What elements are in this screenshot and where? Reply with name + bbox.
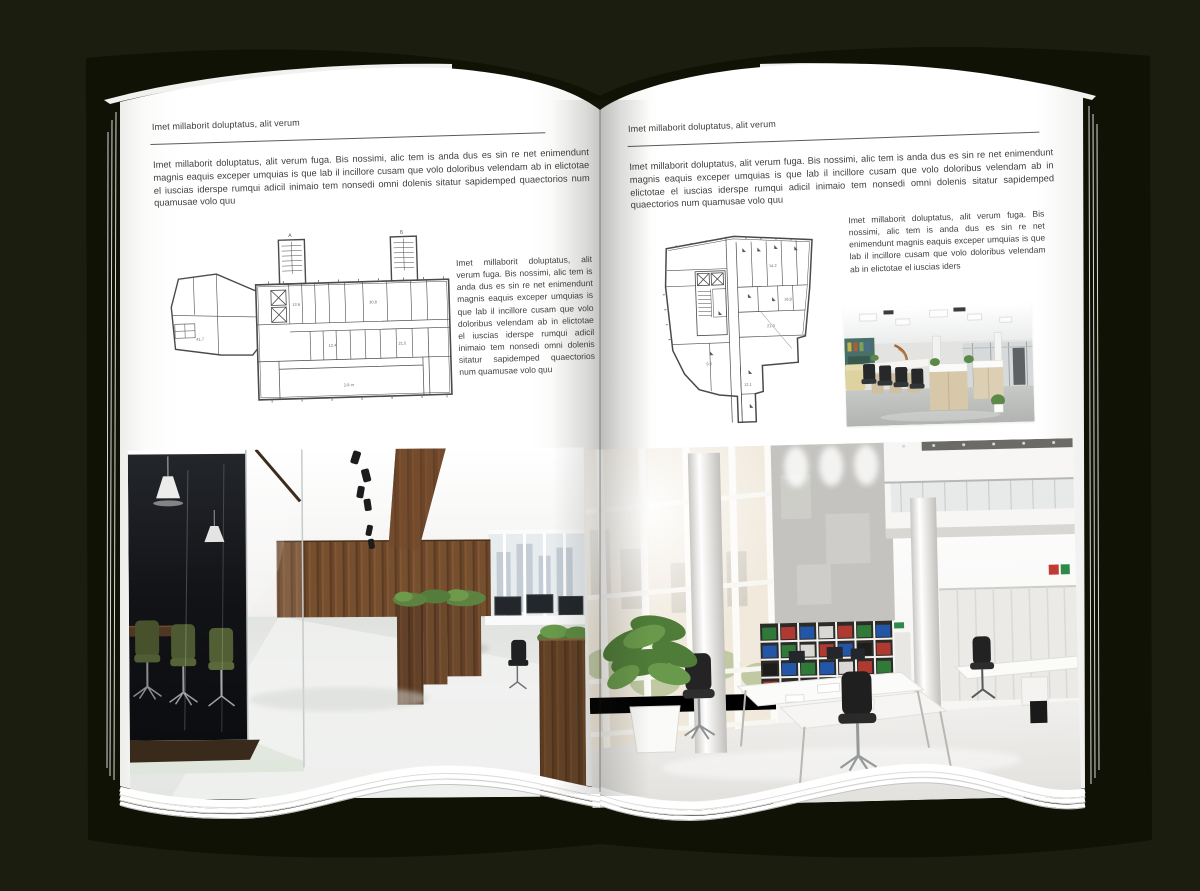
office-photo-cubicles-small [843, 303, 1034, 426]
column [910, 497, 941, 712]
office-photo-dark-wood-interior [128, 447, 586, 799]
office-photo-white-loft-interior [584, 438, 1082, 808]
foreground-planter [537, 624, 586, 796]
office-photo-white-loft-illustration [584, 438, 1082, 808]
fire-sign [1049, 564, 1059, 574]
exit-sign [894, 622, 904, 628]
firstaid-sign [1061, 564, 1070, 574]
office-photo-dark-wood-illustration [128, 447, 586, 799]
brochure-mockup-scene: Imet millaborit doluptatus, alit verum I… [0, 0, 1200, 891]
office-photo-cubicles-illustration [843, 303, 1034, 426]
